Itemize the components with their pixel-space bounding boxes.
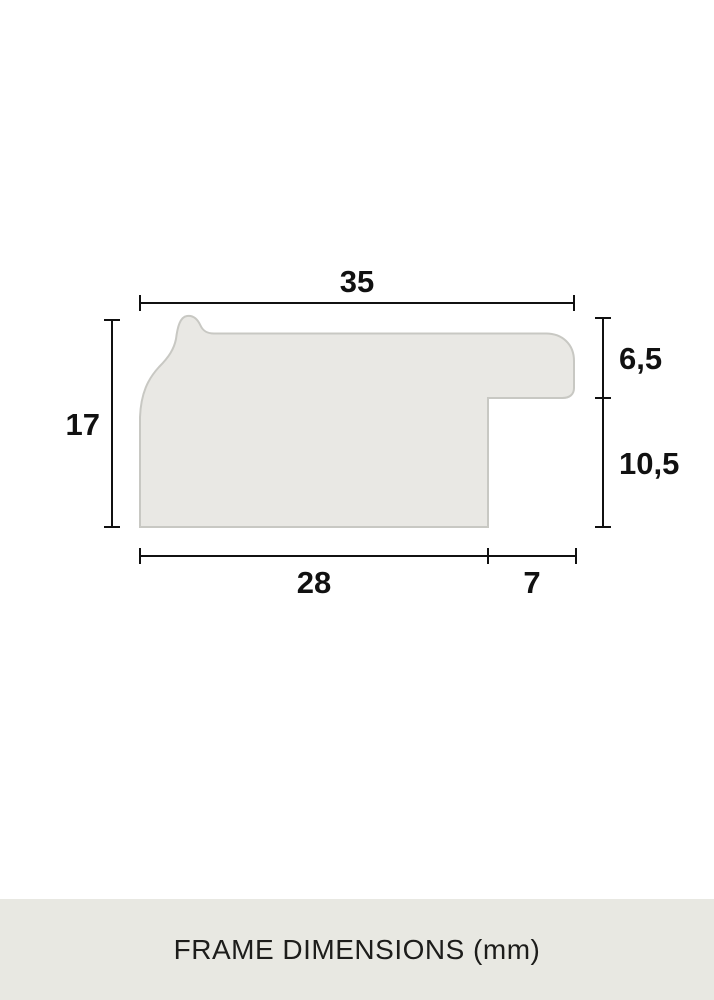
dimension-label-base-width: 28 — [297, 565, 331, 600]
caption-band: FRAME DIMENSIONS (mm) — [0, 899, 714, 1000]
dimension-bottom-widths — [140, 548, 576, 564]
dimension-label-total-width: 35 — [340, 264, 374, 299]
dimension-label-rabbet-height: 10,5 — [619, 446, 679, 481]
dimension-right-heights — [595, 318, 611, 527]
frame-profile-shape — [140, 316, 574, 527]
frame-profile-diagram: 35 17 6,5 10,5 28 7 — [0, 0, 714, 1000]
dimension-label-lip-height: 6,5 — [619, 341, 662, 376]
product-dimension-page: 35 17 6,5 10,5 28 7 FRAME DIMENSIONS (mm… — [0, 0, 714, 1000]
caption-text: FRAME DIMENSIONS (mm) — [174, 934, 541, 966]
dimension-left-height — [104, 320, 120, 527]
dimension-label-total-height: 17 — [66, 407, 100, 442]
dimension-label-rabbet-width: 7 — [523, 565, 540, 600]
